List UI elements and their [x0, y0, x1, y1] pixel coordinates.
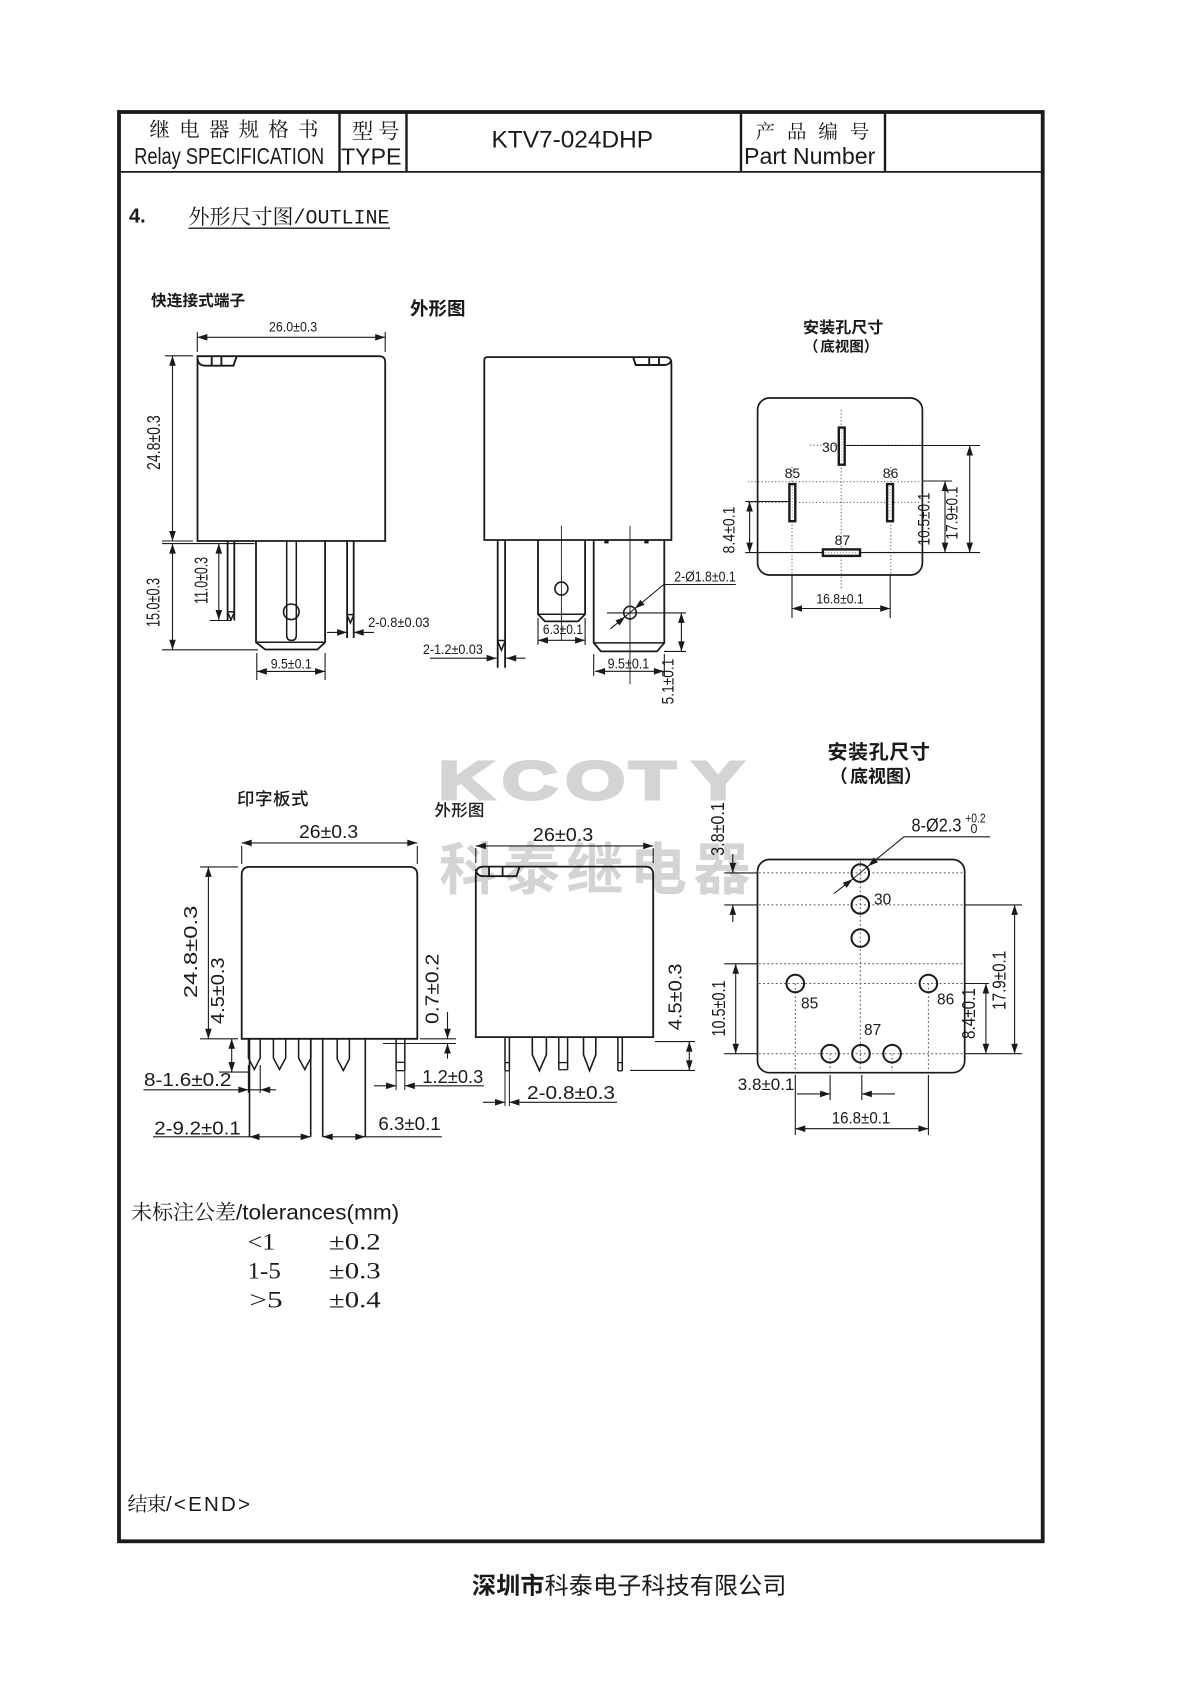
svg-text:±0.2: ±0.2: [329, 1230, 381, 1255]
svg-text:KTV7-024DHP: KTV7-024DHP: [492, 127, 654, 154]
svg-text:9.5±0.1: 9.5±0.1: [271, 656, 312, 672]
svg-text:5.1±0.1: 5.1±0.1: [659, 659, 678, 705]
svg-text:30: 30: [822, 439, 838, 455]
svg-text:85: 85: [801, 996, 818, 1013]
svg-text:±0.4: ±0.4: [329, 1288, 381, 1313]
svg-text:3.8±0.1: 3.8±0.1: [738, 1075, 795, 1094]
svg-text:26±0.3: 26±0.3: [533, 825, 594, 845]
svg-text:<1: <1: [248, 1230, 276, 1255]
svg-text:24.8±0.3: 24.8±0.3: [181, 906, 201, 999]
svg-text:1-5: 1-5: [248, 1259, 281, 1284]
svg-text:26.0±0.3: 26.0±0.3: [269, 318, 317, 334]
svg-text:6.3±0.1: 6.3±0.1: [543, 621, 583, 637]
svg-text:10.5±0.1: 10.5±0.1: [915, 493, 934, 546]
svg-text:T: T: [629, 751, 676, 811]
svg-text:87: 87: [864, 1022, 881, 1039]
svg-text:0.7±0.2: 0.7±0.2: [423, 954, 443, 1024]
svg-text:/<END>: /<END>: [166, 1493, 252, 1516]
svg-text:6.3±0.1: 6.3±0.1: [378, 1114, 440, 1134]
svg-text:8-1.6±0.2: 8-1.6±0.2: [144, 1070, 231, 1090]
svg-text:8-Ø2.3: 8-Ø2.3: [912, 815, 962, 836]
svg-text:86: 86: [937, 992, 954, 1009]
svg-text:26±0.3: 26±0.3: [299, 822, 358, 842]
svg-text:2-1.2±0.03: 2-1.2±0.03: [423, 641, 483, 657]
svg-text:>5: >5: [249, 1288, 282, 1313]
svg-text:3.8±0.1: 3.8±0.1: [708, 802, 728, 856]
svg-text:10.5±0.1: 10.5±0.1: [708, 981, 729, 1037]
svg-text:4.: 4.: [129, 206, 146, 228]
svg-text:30: 30: [874, 891, 892, 908]
svg-text:8.4±0.1: 8.4±0.1: [720, 507, 739, 554]
svg-text:16.8±0.1: 16.8±0.1: [832, 1109, 891, 1128]
svg-text:O: O: [566, 751, 626, 811]
svg-text:85: 85: [785, 465, 801, 481]
svg-text:17.9±0.1: 17.9±0.1: [942, 487, 961, 540]
svg-text:11.0±0.3: 11.0±0.3: [192, 557, 212, 604]
svg-text:Part Number: Part Number: [744, 143, 876, 169]
svg-text:24.8±0.3: 24.8±0.3: [144, 415, 164, 470]
svg-text:87: 87: [835, 532, 851, 548]
svg-text:15.0±0.3: 15.0±0.3: [144, 578, 164, 627]
svg-text:2-9.2±0.1: 2-9.2±0.1: [154, 1119, 240, 1139]
svg-text:2-0.8±0.03: 2-0.8±0.03: [368, 614, 430, 630]
svg-text:/tolerances(mm): /tolerances(mm): [236, 1202, 399, 1225]
svg-text:K: K: [439, 751, 495, 811]
svg-text:±0.3: ±0.3: [329, 1259, 381, 1284]
svg-text:TYPE: TYPE: [341, 144, 402, 170]
svg-text:Relay SPECIFICATION: Relay SPECIFICATION: [134, 143, 324, 169]
svg-text:1.2±0.3: 1.2±0.3: [422, 1067, 483, 1087]
svg-text:2-Ø1.8±0.1: 2-Ø1.8±0.1: [674, 569, 735, 585]
svg-text:/OUTLINE: /OUTLINE: [294, 208, 390, 231]
svg-text:4.5±0.3: 4.5±0.3: [208, 957, 228, 1024]
svg-text:0: 0: [971, 822, 978, 836]
svg-text:8.4±0.1: 8.4±0.1: [958, 988, 979, 1039]
svg-text:2-0.8±0.3: 2-0.8±0.3: [527, 1083, 615, 1103]
svg-text:16.8±0.1: 16.8±0.1: [816, 590, 863, 606]
svg-text:4.5±0.3: 4.5±0.3: [666, 964, 686, 1031]
svg-text:17.9±0.1: 17.9±0.1: [988, 951, 1009, 1010]
svg-text:9.5±0.1: 9.5±0.1: [608, 656, 650, 672]
svg-text:C: C: [502, 751, 557, 811]
svg-text:86: 86: [883, 465, 899, 481]
